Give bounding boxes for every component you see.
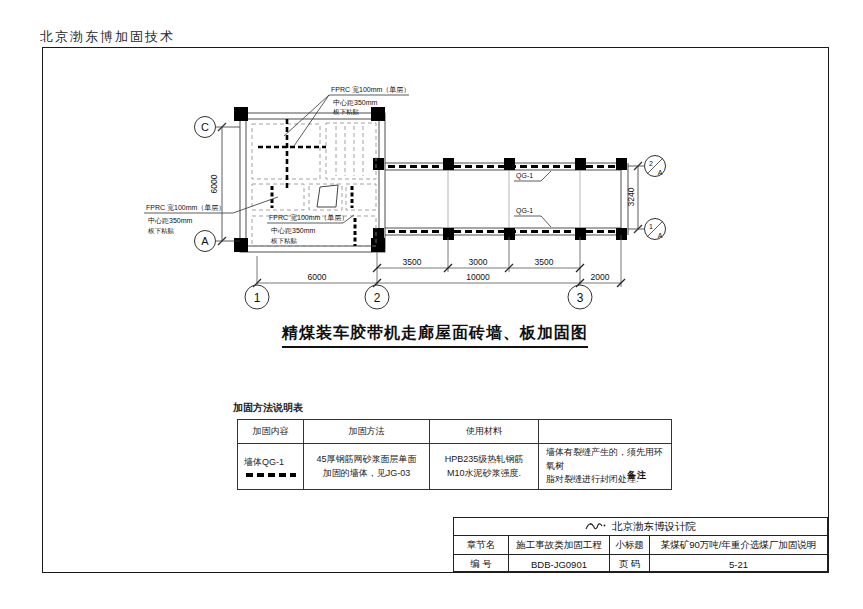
page-value: 5-21 [650, 555, 827, 573]
dim-3500-a: 3500 [403, 257, 422, 267]
dim-3500-b: 3500 [535, 257, 554, 267]
fprc-note-middle: FPRC 宽100mm（单层） 中心距350mm 板下粘贴 [267, 213, 354, 245]
fprc-note-line1: FPRC 宽100mm（单层） [269, 213, 348, 222]
company-logo-icon [585, 521, 607, 532]
page-key: 页 码 [610, 555, 650, 573]
fprc-note-line3: 板下粘贴 [270, 237, 298, 245]
qg1-label: QG-1 [516, 207, 533, 215]
fprc-note-line2: 中心距350mm [271, 227, 316, 234]
spec-col-note [539, 420, 672, 444]
qg1-tag-top: QG-1 [514, 171, 551, 181]
spec-cell-note: 墙体有裂缝产生的，须先用环氧树 脂对裂缝进行封闭处理. 备注 [539, 444, 672, 490]
wall-id-label: 墙体QG-1 [244, 456, 300, 470]
spec-cell-material: HPB235级热轧钢筋 M10水泥砂浆强度. [430, 444, 539, 490]
title-block-row-chapter: 章节名 施工事故类加固工程 小标题 某煤矿90万吨/年重介选煤厂加固说明 [454, 536, 827, 555]
note-line2: 脂对裂缝进行封闭处理. [546, 473, 668, 487]
spec-table-caption: 加固方法说明表 [233, 401, 303, 415]
method-line2: 加固的墙体，见JG-03 [307, 467, 426, 481]
roof-opening [317, 185, 338, 207]
drawing-title: 精煤装车胶带机走廊屋面砖墙、板加固图 [282, 323, 588, 348]
fprc-note-line2: 中心距350mm [148, 217, 193, 224]
spec-col-material: 使用材料 [430, 420, 539, 444]
note-line1: 墙体有裂缝产生的，须先用环氧树 [546, 446, 668, 473]
spec-col-content: 加固内容 [238, 420, 304, 444]
axis-bottom [245, 285, 592, 309]
note-overlay-text: 备注 [627, 469, 647, 483]
qg1-wall-strips [388, 167, 619, 232]
dim-6000-left: 6000 [209, 174, 219, 193]
material-line2: M10水泥砂浆强度. [433, 467, 535, 481]
spec-data-row: 墙体QG-1 45厚钢筋网砂浆面层单面 加固的墙体，见JG-03 HPB235级… [238, 444, 672, 490]
axis-label-2a-den: A [658, 169, 663, 176]
axis-label-1a-den: A [658, 232, 663, 239]
subtitle-value: 某煤矿90万吨/年重介选煤厂加固说明 [650, 536, 827, 554]
dim-3240-right: 3240 [626, 187, 636, 206]
fprc-note-left: FPRC 宽100mm（单层） 中心距350mm 板下粘贴 [144, 197, 278, 235]
material-line1: HPB235级热轧钢筋 [433, 453, 535, 467]
fprc-note-line1: FPRC 宽100mm（单层） [146, 203, 225, 212]
method-line1: 45厚钢筋网砂浆面层单面 [307, 453, 426, 467]
axis-label-2a-num: 2 [649, 160, 653, 167]
drawing-sheet: 北京渤东博加固技术 [0, 0, 863, 609]
axis-label-2: 2 [374, 291, 381, 305]
axis-label-1: 1 [254, 291, 261, 305]
spec-header-row: 加固内容 加固方法 使用材料 [238, 420, 672, 444]
number-key: 编 号 [454, 555, 509, 573]
fprc-note-line3: 板下粘贴 [147, 227, 175, 235]
subtitle-key: 小标题 [610, 536, 650, 554]
dim-3000: 3000 [469, 257, 488, 267]
plan-drawing: FPRC 宽100mm（单层） 中心距350mm 板下粘贴 FPRC 宽100m… [140, 70, 720, 320]
qg1-label: QG-1 [516, 172, 533, 180]
axis-label-3: 3 [577, 291, 584, 305]
drawing-title-wrap: 精煤装车胶带机走廊屋面砖墙、板加固图 [140, 323, 730, 348]
chapter-key: 章节名 [454, 536, 509, 554]
dim-6000-bottom: 6000 [308, 272, 327, 282]
title-block-company-row: 北京渤东博设计院 [454, 518, 827, 536]
dashed-legend-symbol [246, 473, 296, 477]
axis-label-a: A [201, 235, 209, 247]
dim-2000: 2000 [591, 272, 610, 282]
axis-label-1a-num: 1 [649, 223, 653, 230]
fprc-note-line3: 板下粘贴 [332, 108, 360, 116]
dim-10000: 10000 [466, 272, 490, 282]
letterhead-text: 北京渤东博加固技术 [40, 28, 175, 46]
title-block: 北京渤东博设计院 章节名 施工事故类加固工程 小标题 某煤矿90万吨/年重介选煤… [453, 517, 828, 572]
spec-table: 加固内容 加固方法 使用材料 墙体QG-1 45厚钢筋网砂浆面层单面 加固的墙体… [237, 419, 672, 490]
spec-cell-method: 45厚钢筋网砂浆面层单面 加固的墙体，见JG-03 [304, 444, 430, 490]
axis-label-c: C [201, 121, 209, 133]
title-block-row-number: 编 号 BDB-JG0901 页 码 5-21 [454, 555, 827, 573]
fprc-note-line1: FPRC 宽100mm（单层） [331, 85, 410, 94]
chapter-value: 施工事故类加固工程 [509, 536, 610, 554]
company-name: 北京渤东博设计院 [612, 520, 696, 534]
corridor-bay-lines [448, 170, 580, 228]
number-value: BDB-JG0901 [509, 555, 610, 573]
spec-cell-content: 墙体QG-1 [238, 444, 304, 490]
qg1-tag-bottom: QG-1 [514, 207, 551, 227]
spec-col-method: 加固方法 [304, 420, 430, 444]
fprc-note-top: FPRC 宽100mm（单层） 中心距350mm 板下粘贴 [284, 85, 410, 146]
fprc-note-line2: 中心距350mm [333, 99, 378, 106]
